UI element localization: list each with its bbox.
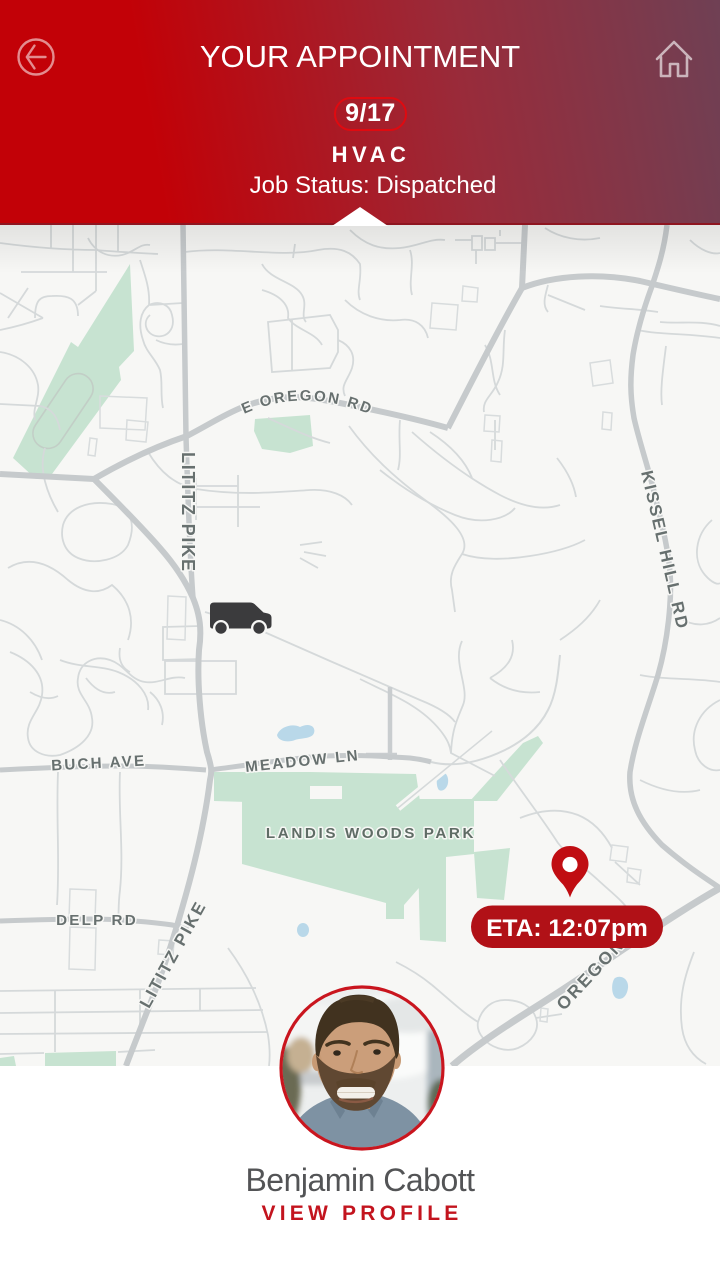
svg-text:DELP RD: DELP RD [56, 912, 138, 929]
svg-text:LANDIS WOODS PARK: LANDIS WOODS PARK [266, 825, 476, 842]
svg-text:LITITZ PIKE: LITITZ PIKE [178, 452, 198, 573]
svg-text:ETA: 12:07pm: ETA: 12:07pm [486, 915, 648, 942]
